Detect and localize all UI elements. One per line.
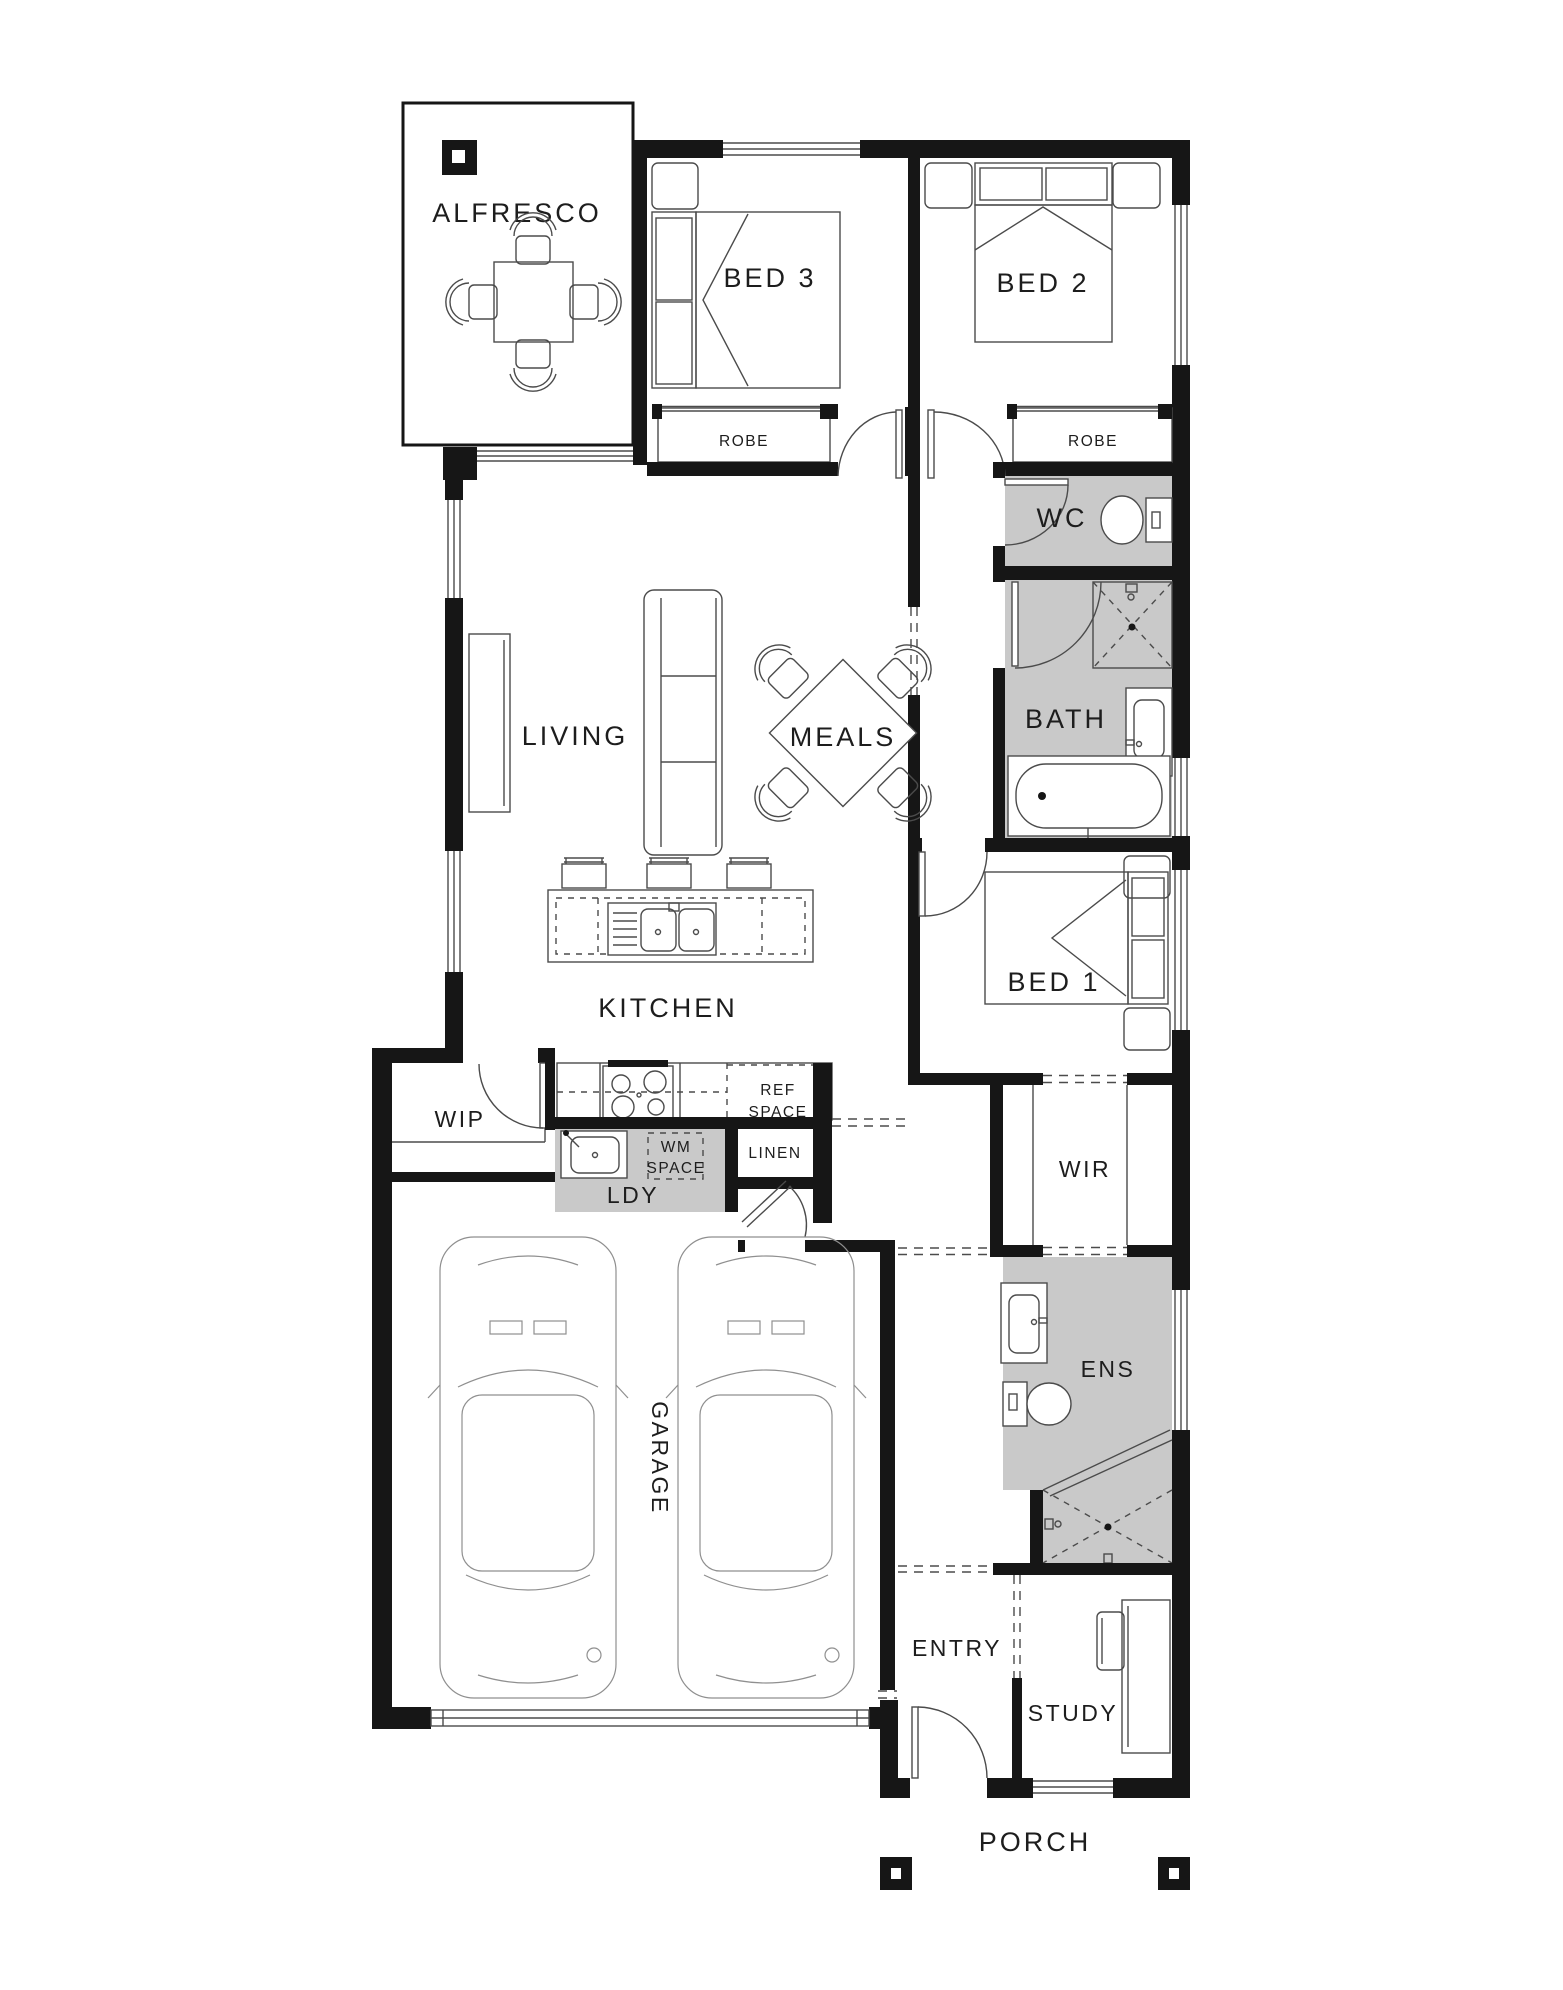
vanity-icon-ensuite (1001, 1283, 1047, 1363)
bed3-pillow-1 (656, 218, 692, 300)
car-left (428, 1237, 628, 1698)
window-top-bed3 (723, 143, 860, 155)
wall-bath-bed1-right (985, 838, 1172, 852)
car-right (666, 1237, 866, 1698)
floor-plan-canvas: ALFRESCO (0, 0, 1563, 1990)
bed1-door-leaf (919, 852, 925, 916)
bed2-label: BED 2 (996, 268, 1089, 298)
wall-hall-left-upper (908, 476, 920, 607)
kitchen-label: KITCHEN (598, 993, 738, 1023)
bed3-side-table-icon (652, 163, 698, 209)
wall-shower-left (1030, 1490, 1043, 1563)
desk-chair-icon (1097, 1612, 1124, 1670)
bed2-fold-line (975, 207, 1112, 250)
wall-bed1-wir-right (1127, 1073, 1172, 1085)
wall-right-seg1 (1172, 140, 1190, 205)
laundry-label: LDY (607, 1182, 659, 1208)
alfresco-outline (403, 103, 633, 445)
garage-door-swing (789, 1186, 806, 1237)
wall-linen-right (813, 1063, 832, 1223)
kitchen-back-bench: REF SPACE (545, 1060, 832, 1130)
wall-garage-right-upper (880, 1252, 895, 1690)
robe3-end-block-left (652, 404, 662, 419)
wall-front-seg3 (1113, 1778, 1190, 1798)
bed3-door-leaf (896, 410, 902, 478)
stool-icon-2 (647, 858, 691, 888)
bed2-room: BED 2 (925, 163, 1160, 342)
window-right-bed2 (1175, 205, 1187, 365)
robe2-end-block-left (1007, 404, 1017, 419)
wall-alfresco-corner (443, 447, 477, 480)
wall-laundry-right (725, 1125, 738, 1212)
linen-label: LINEN (748, 1145, 801, 1162)
robe3-label: ROBE (719, 433, 769, 450)
bed2-door-leaf (928, 410, 934, 478)
alfresco-post-core (452, 150, 465, 163)
wall-wc-bath (993, 566, 1172, 580)
wall-under-robe3 (647, 462, 838, 476)
wir-label: WIR (1059, 1156, 1111, 1182)
front-door-leaf (912, 1707, 918, 1778)
wm-label-line2: SPACE (647, 1160, 706, 1177)
sliding-door-alfresco (477, 451, 633, 461)
alfresco-area: ALFRESCO (403, 103, 633, 445)
wm-label-line1: WM (661, 1139, 692, 1156)
toilet-icon-ensuite (1003, 1382, 1071, 1426)
wall-wir-left (990, 1085, 1003, 1245)
bed1-door-swing (925, 852, 987, 916)
garage-area: GARAGE (428, 1237, 897, 1726)
window-right-bath (1175, 758, 1187, 836)
window-left-living-lower (448, 851, 460, 972)
wall-garage-entry-right (805, 1240, 895, 1252)
desk-icon (1122, 1600, 1170, 1753)
porch-post-left-core (891, 1868, 901, 1879)
bed3-bed-icon (696, 212, 840, 388)
bed1-headboard-icon (1128, 872, 1168, 1004)
wall-bath-bed1-left (908, 838, 922, 852)
robe3-end-block-right (820, 404, 838, 419)
garage-internal-access (878, 1691, 897, 1698)
bed1-label: BED 1 (1007, 967, 1100, 997)
wall-left-seg1 (445, 480, 463, 500)
robe2-end-block-right (1158, 404, 1172, 419)
wall-garage-top (372, 1172, 555, 1182)
bed3-room: BED 3 (652, 158, 920, 407)
living-area: LIVING MEALS (469, 590, 940, 855)
bed1-room: BED 1 (908, 852, 1170, 1073)
wall-wir-ens-right (1127, 1245, 1172, 1257)
wall-garage-right-lower (880, 1700, 898, 1798)
entry-label: ENTRY (912, 1635, 1002, 1661)
bed1-pillow-2 (1132, 940, 1164, 998)
living-label: LIVING (522, 721, 629, 751)
dining-chair-ne (872, 636, 941, 705)
wall-study-top (993, 1563, 1172, 1575)
front-door-swing (918, 1707, 987, 1778)
porch-post-right-core (1169, 1868, 1179, 1879)
dining-chair-sw (746, 762, 815, 831)
robe2-label: ROBE (1068, 433, 1118, 450)
garage-panel-door (431, 1710, 869, 1726)
wall-wir-ens-left (990, 1245, 1043, 1257)
wall-wc-top (1005, 462, 1172, 476)
wall-top-right (860, 140, 1190, 158)
bed1-pillow-1 (1132, 878, 1164, 936)
window-left-living-upper (448, 500, 460, 598)
porch-label: PORCH (979, 1827, 1092, 1857)
bed1-side-table-top (1124, 856, 1170, 898)
wall-hall-right-seg3 (993, 668, 1005, 838)
cooktop-icon (603, 1060, 673, 1120)
bed2-headboard-icon (975, 163, 1112, 205)
wc-door-leaf (1005, 479, 1068, 485)
alfresco-label: ALFRESCO (432, 198, 602, 228)
stool-icon-3 (727, 858, 771, 888)
bed3-pillow-2 (656, 302, 692, 384)
bed2-side-table-right (1113, 163, 1160, 208)
wall-top-left (637, 140, 723, 158)
wip-door-swing (479, 1064, 543, 1128)
bed3-label: BED 3 (723, 263, 816, 293)
wall-right-seg5 (1172, 1430, 1190, 1778)
bed1-side-table-bottom (1124, 1008, 1170, 1050)
window-right-bed1 (1175, 870, 1187, 1030)
wall-hall-top-stub (905, 407, 920, 476)
wall-bed1-wir-left (908, 1073, 1043, 1085)
bath-door-leaf (1012, 582, 1018, 666)
dining-chair-se (872, 762, 941, 831)
wall-garage-left (372, 1048, 392, 1729)
wir-room: WIR (908, 1073, 1172, 1257)
kitchen-area: KITCHEN (548, 858, 813, 1023)
toilet-icon-wc (1101, 496, 1172, 544)
wall-front-seg2 (987, 1778, 1033, 1798)
wall-garage-entry-left (738, 1240, 745, 1252)
bed2-pillow-2 (1046, 168, 1107, 200)
wall-left-seg2 (445, 598, 463, 851)
stool-icon-1 (562, 858, 606, 888)
wall-right-seg2 (1172, 365, 1190, 758)
kitchen-sink-icon (608, 903, 716, 955)
porch-area: PORCH (880, 1827, 1190, 1890)
bed3-fold-line (703, 214, 748, 386)
window-right-ensuite (1175, 1290, 1187, 1430)
window-front-study (1033, 1781, 1113, 1793)
sofa-icon (644, 590, 722, 855)
wip-label: WIP (435, 1106, 486, 1132)
wall-bench-bottom (555, 1117, 832, 1129)
bed3-door-swing (838, 412, 896, 476)
bed2-pillow-1 (980, 168, 1042, 200)
ref-label-line1: REF (760, 1082, 796, 1099)
wall-right-seg3 (1172, 836, 1190, 870)
island-bench-icon (548, 890, 813, 962)
garage-door-leaf-line2 (747, 1186, 791, 1227)
garage-label: GARAGE (647, 1401, 673, 1514)
tv-unit-icon (469, 634, 510, 812)
bath-label: BATH (1025, 704, 1107, 734)
wall-bed3-left (633, 140, 647, 465)
bathtub-icon (1008, 756, 1170, 848)
wall-bench-left-stub (545, 1060, 555, 1130)
wall-right-seg4 (1172, 1030, 1190, 1290)
bar-stools (562, 858, 771, 888)
meals-label: MEALS (790, 722, 897, 752)
study-label: STUDY (1028, 1700, 1118, 1726)
laundry-sink-icon (561, 1130, 627, 1178)
wall-bed1-left (908, 852, 920, 1073)
dining-chair-nw (746, 636, 815, 705)
floor-plan-drawing: ALFRESCO (0, 0, 1563, 1990)
wall-hall-right-seg1 (993, 462, 1005, 478)
wall-garage-bottom-left (372, 1707, 431, 1729)
wall-bed3-bed2-divider (908, 158, 920, 407)
ensuite-label: ENS (1081, 1356, 1136, 1382)
robes-row: ROBE ROBE (647, 404, 1172, 478)
wall-entry-study-stub (1012, 1678, 1022, 1778)
bed2-side-table-left (925, 163, 972, 208)
wc-label: WC (1037, 503, 1088, 533)
